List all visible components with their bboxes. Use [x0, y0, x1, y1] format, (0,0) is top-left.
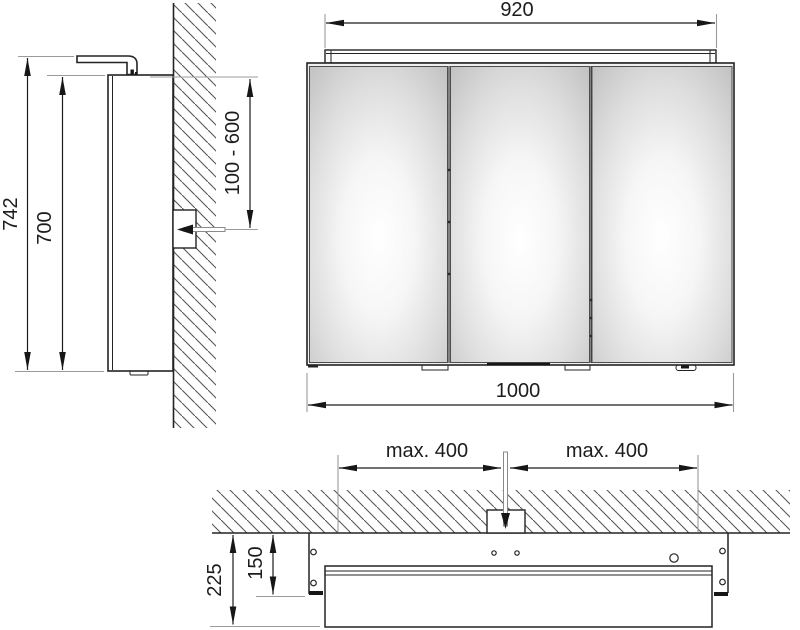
mirror-door-left	[310, 67, 448, 363]
side-view: 742 700 100 - 600	[0, 3, 258, 428]
plan-view: max. 400 max. 400	[204, 440, 790, 627]
mirror-door-middle	[451, 67, 590, 363]
dim-label-carcase-height: 700	[34, 211, 56, 244]
cable-hole	[515, 551, 519, 555]
technical-drawing-canvas: 742 700 100 - 600 920	[0, 0, 800, 630]
screw-hole	[720, 548, 726, 554]
dim-label-carcase-depth: 150	[245, 546, 267, 579]
dimension-carcase-height: 700	[34, 76, 105, 371]
plan-bracket-left-foot	[309, 591, 323, 595]
side-light-mount-small	[135, 72, 137, 75]
dimension-light-width: 920	[325, 0, 717, 48]
screw-hole	[720, 579, 726, 585]
plan-bracket-right-foot	[714, 592, 728, 596]
dimension-carcase-depth: 150	[245, 535, 305, 597]
dim-label-outlet-offset-right: max. 400	[566, 440, 648, 462]
dim-label-total-depth: 225	[204, 563, 226, 596]
side-light-fixture	[77, 56, 137, 75]
technical-drawing-page: 742 700 100 - 600 920	[0, 0, 800, 630]
side-light-mount	[131, 70, 134, 75]
dim-label-total-height: 742	[0, 197, 22, 230]
dimension-cabinet-width: 1000	[307, 373, 734, 412]
front-light-strip	[325, 50, 716, 63]
screw-hole	[311, 549, 317, 555]
dim-label-light-width: 920	[500, 0, 533, 21]
mirror-door-right	[592, 67, 732, 363]
front-view: 920	[307, 0, 734, 412]
dim-label-outlet-height: 100 - 600	[222, 111, 244, 196]
bottom-damper-inner	[681, 366, 689, 369]
side-cabinet-body	[108, 75, 173, 371]
plan-cabinet-underside	[309, 533, 728, 627]
cable-hole	[492, 551, 496, 555]
dim-label-cabinet-width: 1000	[496, 380, 541, 402]
dim-label-outlet-offset-left: max. 400	[386, 440, 468, 462]
plan-large-hole	[670, 554, 678, 562]
screw-hole	[311, 580, 317, 586]
